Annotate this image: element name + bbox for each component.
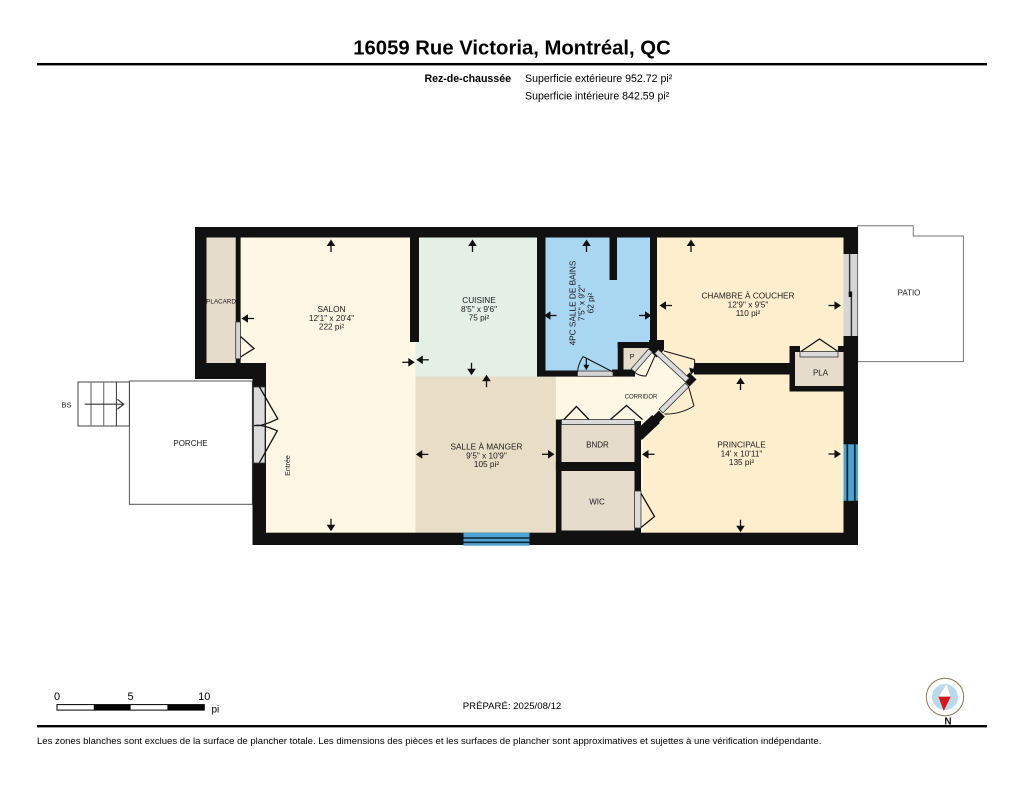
svg-text:16059 Rue Victoria, Montréal,: 16059 Rue Victoria, Montréal, QC xyxy=(353,38,671,60)
svg-text:CUISINE: CUISINE xyxy=(462,296,496,305)
svg-text:PRINCIPALE: PRINCIPALE xyxy=(717,441,766,450)
svg-text:Les zones blanches sont exclue: Les zones blanches sont exclues de la su… xyxy=(37,736,821,747)
svg-text:BNDR: BNDR xyxy=(586,440,609,449)
svg-text:SALON: SALON xyxy=(318,305,346,314)
svg-text:8'5" x 9'6": 8'5" x 9'6" xyxy=(461,305,497,314)
svg-text:SALLE À MANGER: SALLE À MANGER xyxy=(451,442,523,452)
svg-text:Rez-de-chaussée: Rez-de-chaussée xyxy=(424,73,511,85)
svg-text:WIC: WIC xyxy=(589,497,605,506)
svg-text:14' x 10'11": 14' x 10'11" xyxy=(721,449,763,458)
svg-text:PRÉPARÉ: 2025/08/12: PRÉPARÉ: 2025/08/12 xyxy=(463,701,562,712)
svg-text:5: 5 xyxy=(128,691,134,703)
svg-text:62 pi²: 62 pi² xyxy=(586,292,595,313)
svg-text:10: 10 xyxy=(198,691,210,703)
svg-text:pi: pi xyxy=(212,705,220,716)
svg-text:0: 0 xyxy=(54,691,60,703)
svg-text:PLA: PLA xyxy=(813,368,829,377)
svg-text:Entrée: Entrée xyxy=(285,455,292,476)
svg-text:222 pi²: 222 pi² xyxy=(319,323,344,332)
svg-text:7'5" x 9'2": 7'5" x 9'2" xyxy=(578,285,587,321)
svg-text:75 pi²: 75 pi² xyxy=(469,314,490,323)
svg-text:CHAMBRE À COUCHER: CHAMBRE À COUCHER xyxy=(701,291,794,301)
svg-text:BS: BS xyxy=(61,401,71,410)
svg-text:PATIO: PATIO xyxy=(898,289,921,298)
svg-text:P: P xyxy=(629,352,634,361)
svg-text:PLACARD: PLACARD xyxy=(206,299,236,306)
svg-text:135 pi²: 135 pi² xyxy=(729,458,754,467)
svg-text:12'1" x 20'4": 12'1" x 20'4" xyxy=(309,314,354,323)
svg-text:PORCHE: PORCHE xyxy=(173,439,207,448)
svg-text:CORRIDOR: CORRIDOR xyxy=(625,395,658,401)
svg-text:9'5" x 10'9": 9'5" x 10'9" xyxy=(466,451,507,460)
svg-text:Superficie extérieure 952.72 p: Superficie extérieure 952.72 pi² xyxy=(525,73,673,85)
svg-text:Superficie intérieure 842.59 p: Superficie intérieure 842.59 pi² xyxy=(525,91,670,103)
svg-text:110 pi²: 110 pi² xyxy=(736,309,761,318)
svg-text:12'9" x 9'5": 12'9" x 9'5" xyxy=(728,300,769,309)
svg-text:105 pi²: 105 pi² xyxy=(474,460,499,469)
svg-text:4PC SALLE DE BAINS: 4PC SALLE DE BAINS xyxy=(569,260,578,345)
